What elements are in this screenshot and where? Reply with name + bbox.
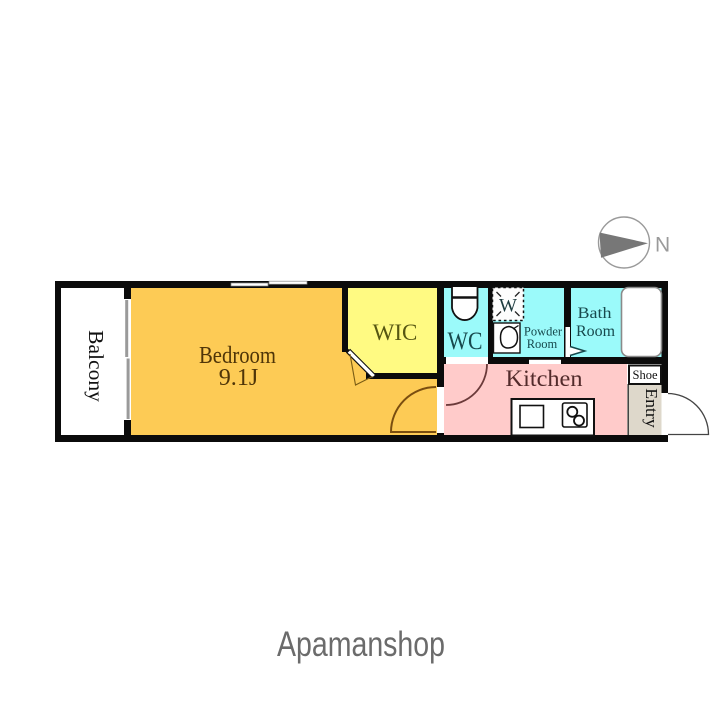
svg-text:9.1J: 9.1J [219, 365, 259, 391]
svg-text:WIC: WIC [373, 320, 418, 345]
svg-text:Entry: Entry [642, 388, 661, 428]
svg-text:Bath: Bath [578, 305, 612, 322]
svg-text:N: N [655, 234, 670, 257]
svg-text:WC: WC [448, 328, 483, 355]
svg-text:Apamanshop: Apamanshop [277, 625, 445, 664]
svg-text:Kitchen: Kitchen [506, 366, 583, 392]
svg-text:Balcony: Balcony [84, 330, 108, 402]
svg-text:W: W [499, 296, 517, 317]
svg-text:Room: Room [527, 337, 558, 351]
svg-text:Shoe: Shoe [633, 368, 658, 382]
svg-text:Room: Room [576, 323, 616, 340]
